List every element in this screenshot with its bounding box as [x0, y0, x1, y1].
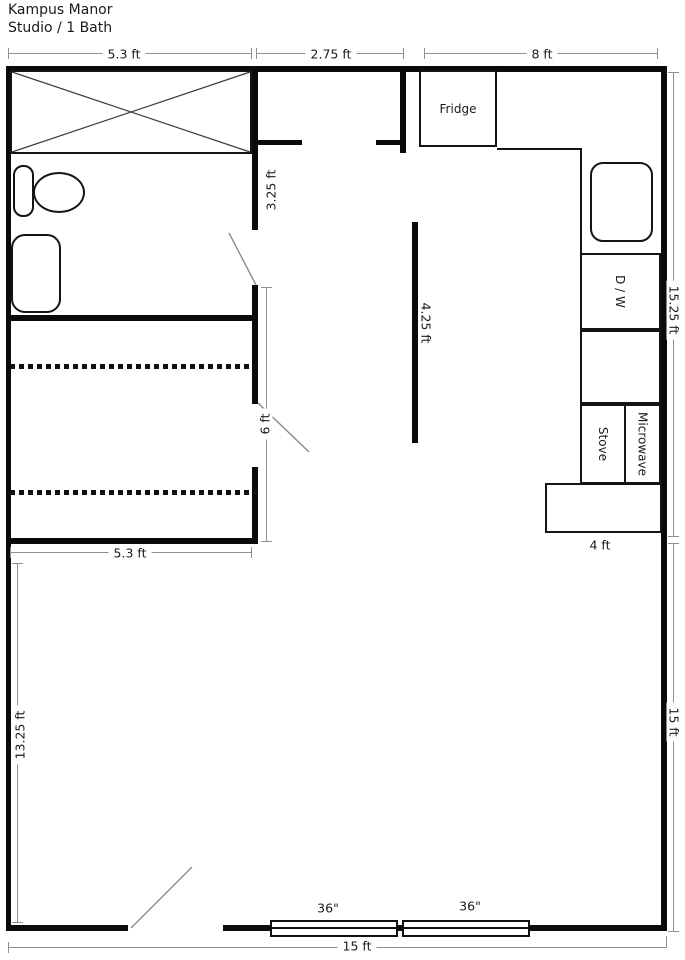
dim-tick [668, 72, 679, 73]
wall-closet-right-lower [252, 467, 258, 544]
wall-left [6, 66, 11, 931]
closet-rod-upper [10, 364, 257, 369]
dishwasher-label: D / W [584, 253, 657, 330]
wall-bottom-left [6, 925, 128, 931]
window-right-glass-line [404, 927, 528, 929]
dim-tick [12, 922, 23, 923]
dim-label-closet-opening: 6 ft [258, 408, 273, 439]
dim-tick [10, 547, 11, 558]
microwave-box: Microwave [624, 404, 661, 484]
dim-label-right-upper: 15.25 ft [667, 281, 682, 340]
wall-closet-top [6, 315, 258, 321]
dim-tick [668, 931, 679, 932]
fridge-label: Fridge [421, 72, 495, 145]
cabinet-box [580, 330, 661, 404]
dim-tick [261, 541, 272, 542]
dim-label-right-lower: 15 ft [667, 703, 682, 742]
wall-island [412, 222, 418, 443]
wall-hall-stub-left [258, 140, 302, 145]
dim-label-bottom-width: 15 ft [338, 939, 377, 954]
wall-bathroom-right [252, 72, 258, 230]
bathroom-door-swing [229, 233, 256, 285]
dim-label-window-right: 36" [454, 899, 486, 914]
dim-label-living-height: 13.25 ft [13, 706, 28, 765]
plan-title: Kampus Manor [8, 2, 113, 18]
microwave-label: Microwave [605, 428, 681, 461]
dim-tick [12, 563, 23, 564]
vanity-sink [11, 234, 61, 313]
dim-label-window-left: 36" [312, 901, 344, 916]
dim-label-bath-wall: 3.25 ft [264, 165, 279, 216]
dim-label-island-wall: 4.25 ft [419, 298, 434, 349]
window-right [402, 920, 530, 937]
counter-edge-left [580, 148, 582, 254]
dim-label-kitchen-width: 8 ft [526, 47, 557, 62]
counter-edge-top [497, 148, 582, 150]
dim-tick [666, 936, 667, 947]
closet-rod-lower [10, 490, 257, 495]
dim-tick [8, 48, 9, 59]
dishwasher-box: D / W [580, 253, 661, 330]
dim-tick [424, 48, 425, 59]
dim-tick [8, 942, 9, 953]
window-left [270, 920, 398, 937]
bathtub [10, 70, 252, 154]
toilet-bowl [33, 172, 85, 213]
window-left-glass-line [272, 927, 396, 929]
floor-plan: Kampus Manor Studio / 1 Bath Fridge D / … [0, 0, 685, 960]
dim-label-bath-width: 5.3 ft [103, 47, 146, 62]
dim-tick [668, 536, 679, 537]
dim-tick [251, 48, 252, 59]
dim-tick [403, 48, 404, 59]
entry-door-swing [131, 867, 192, 928]
kitchen-sink [590, 162, 653, 242]
dim-tick [657, 48, 658, 59]
dim-tick [261, 287, 272, 288]
fridge-box: Fridge [419, 70, 497, 147]
wall-closet-right-upper [252, 285, 258, 404]
dim-tick [251, 547, 252, 558]
plan-subtitle: Studio / 1 Bath [8, 20, 112, 36]
wall-kitchen-left [400, 72, 406, 153]
dim-tick [256, 48, 257, 59]
dim-label-closet-width: 5.3 ft [109, 546, 152, 561]
dim-label-hall-width: 2.75 ft [306, 47, 357, 62]
counter-box [545, 483, 662, 533]
dim-tick [668, 543, 679, 544]
dim-label-counter-width: 4 ft [584, 538, 615, 553]
wall-closet-bottom [6, 538, 258, 544]
toilet-tank [13, 165, 34, 217]
wall-hall-stub-right [376, 140, 400, 145]
